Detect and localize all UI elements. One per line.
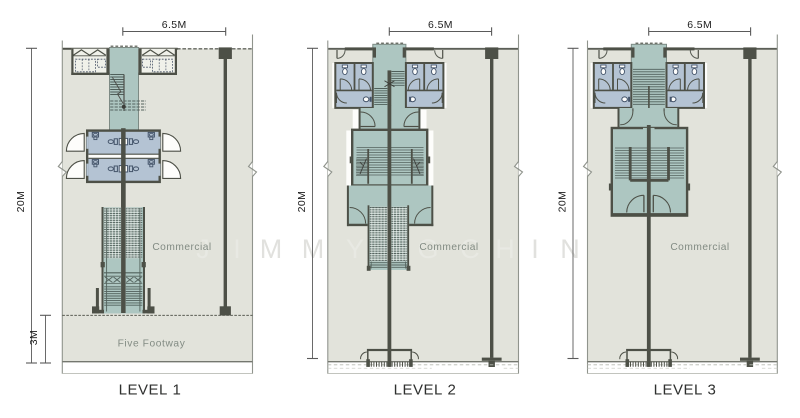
svg-text:20M: 20M bbox=[15, 191, 27, 213]
svg-text:I: I bbox=[233, 234, 241, 264]
svg-text:Commercial: Commercial bbox=[152, 242, 211, 253]
svg-text:I: I bbox=[531, 234, 539, 264]
svg-text:Commercial: Commercial bbox=[419, 242, 478, 253]
svg-text:Commercial: Commercial bbox=[670, 242, 729, 253]
svg-text:20M: 20M bbox=[296, 191, 308, 213]
svg-text:3M: 3M bbox=[28, 330, 40, 345]
svg-text:20M: 20M bbox=[557, 191, 569, 213]
svg-text:Y: Y bbox=[346, 234, 364, 264]
svg-text:6.5M: 6.5M bbox=[162, 19, 187, 31]
svg-text:M: M bbox=[260, 234, 283, 264]
svg-text:LEVEL 3: LEVEL 3 bbox=[654, 381, 717, 398]
svg-text:Five Footway: Five Footway bbox=[118, 339, 186, 350]
svg-text:LEVEL 2: LEVEL 2 bbox=[394, 381, 457, 398]
svg-text:LEVEL 1: LEVEL 1 bbox=[119, 381, 182, 398]
svg-text:6.5M: 6.5M bbox=[428, 19, 453, 31]
svg-text:H: H bbox=[495, 234, 515, 264]
svg-text:M: M bbox=[302, 234, 325, 264]
svg-text:6.5M: 6.5M bbox=[687, 19, 712, 31]
svg-text:N: N bbox=[560, 234, 580, 264]
